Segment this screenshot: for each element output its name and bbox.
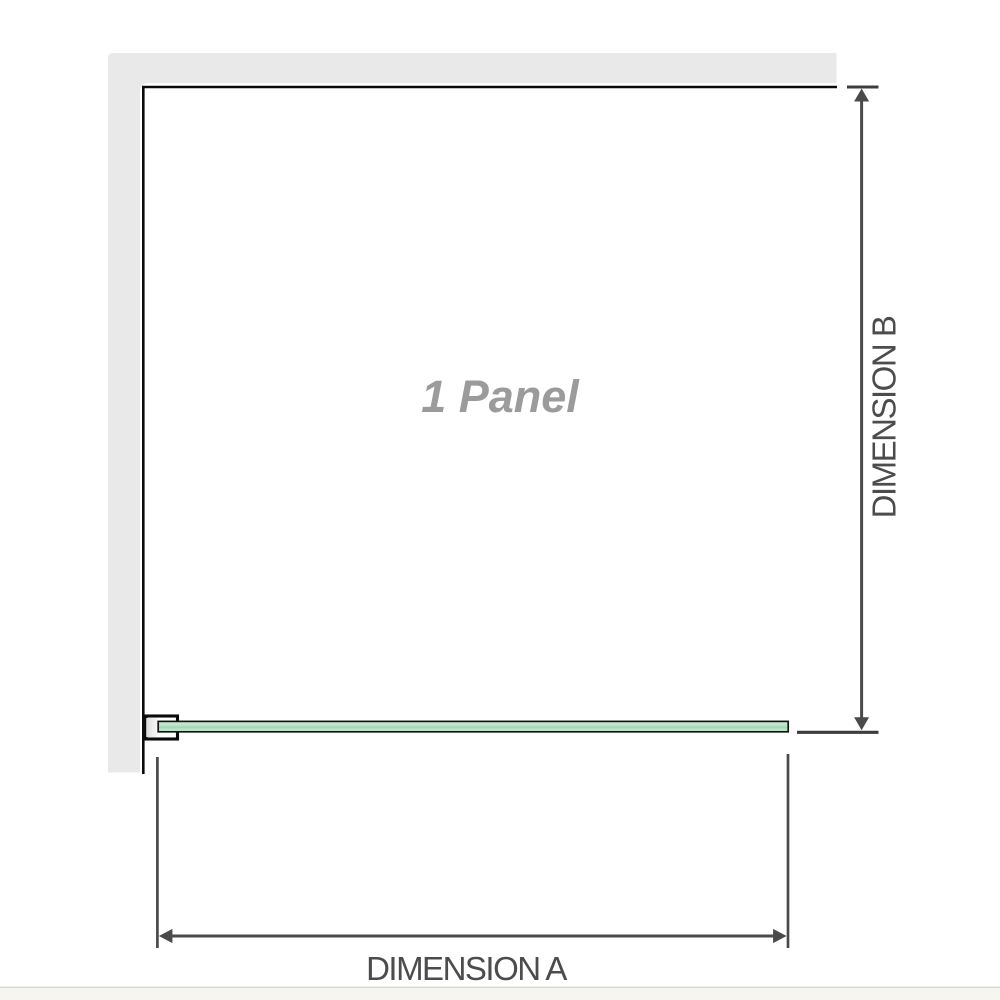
svg-text:DIMENSION B: DIMENSION B	[866, 316, 903, 518]
svg-text:DIMENSION A: DIMENSION A	[366, 950, 567, 987]
svg-text:1 Panel: 1 Panel	[421, 371, 580, 422]
